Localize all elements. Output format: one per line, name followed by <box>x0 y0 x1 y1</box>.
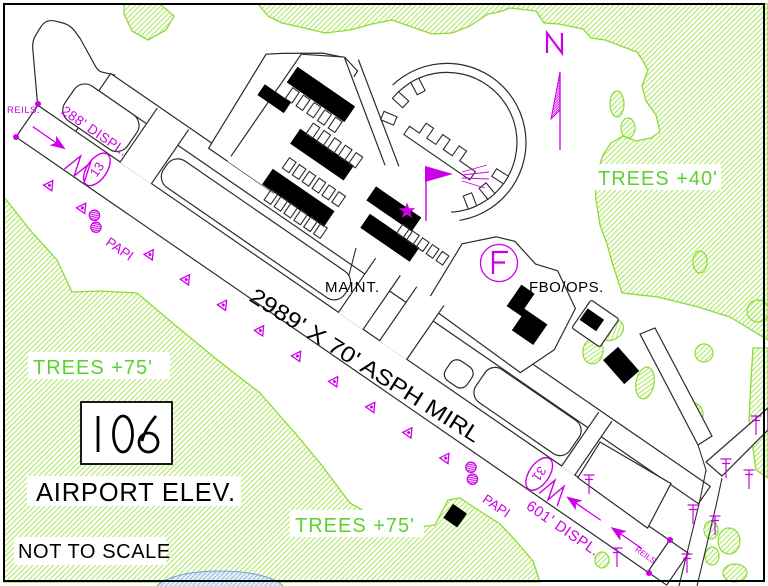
svg-text:AIRPORT ELEV.: AIRPORT ELEV. <box>36 479 236 507</box>
svg-text:MAINT.: MAINT. <box>325 279 380 296</box>
svg-text:FBO/OPS.: FBO/OPS. <box>529 279 604 296</box>
svg-text:REILS.: REILS. <box>7 105 40 116</box>
svg-text:NOT TO SCALE: NOT TO SCALE <box>18 541 171 563</box>
svg-text:TREES +75': TREES +75' <box>295 515 415 537</box>
svg-text:TREES +75': TREES +75' <box>33 357 153 379</box>
svg-text:TREES +40': TREES +40' <box>598 168 718 190</box>
